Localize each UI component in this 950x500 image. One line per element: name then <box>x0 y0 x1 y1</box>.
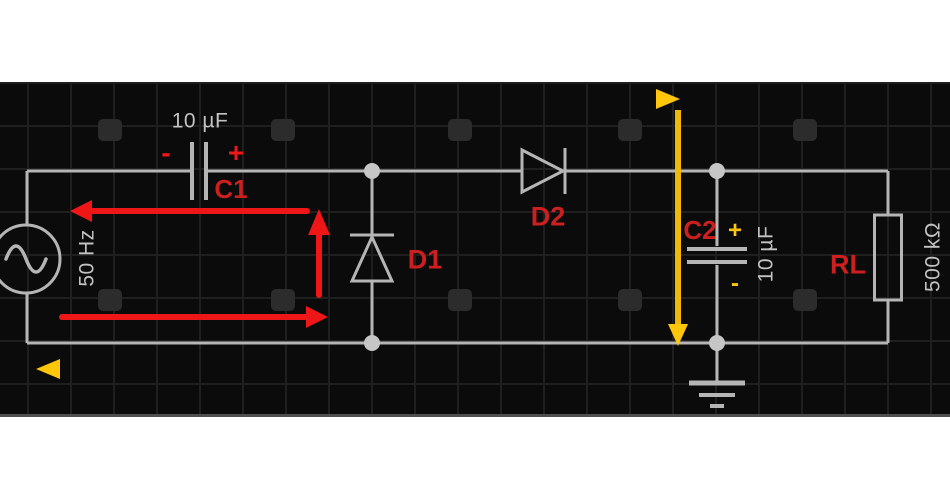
c1-value-label: 10 µF <box>172 111 229 132</box>
diode-d1-symbol <box>350 235 394 281</box>
current-arrow-red-up <box>308 209 330 295</box>
ac-source-symbol <box>0 225 60 293</box>
c2-minus-sign: - <box>731 272 739 296</box>
c2-label: C2 <box>683 217 716 243</box>
rl-label: RL <box>830 252 866 279</box>
capacitor-c2-symbol <box>687 249 747 262</box>
sine-wave-icon <box>6 246 46 272</box>
capacitor-c1-symbol <box>192 142 206 200</box>
current-arrow-yellow-top <box>36 89 680 109</box>
page: 10 µF - + C1 D1 D2 C2 + - 10 µF RL 500 k… <box>0 0 950 500</box>
c1-plus-sign: + <box>228 139 244 167</box>
rl-value-label: 500 kΩ <box>923 222 944 292</box>
resistor-rl-symbol <box>875 215 902 300</box>
c2-value-label: 10 µF <box>756 226 777 283</box>
c1-minus-sign: - <box>161 139 170 167</box>
diode-d2-symbol <box>522 148 565 194</box>
circuit-canvas: 10 µF - + C1 D1 D2 C2 + - 10 µF RL 500 k… <box>0 82 950 417</box>
source-frequency-label: 50 Hz <box>77 229 98 286</box>
ground-symbol <box>689 383 745 406</box>
c1-label: C1 <box>214 176 247 202</box>
d1-label: D1 <box>408 247 443 274</box>
current-arrow-yellow-return <box>36 359 676 379</box>
current-arrow-red-left <box>70 200 307 222</box>
d2-label: D2 <box>531 204 566 231</box>
c2-plus-sign: + <box>728 219 742 243</box>
circuit-drawing <box>0 82 950 417</box>
